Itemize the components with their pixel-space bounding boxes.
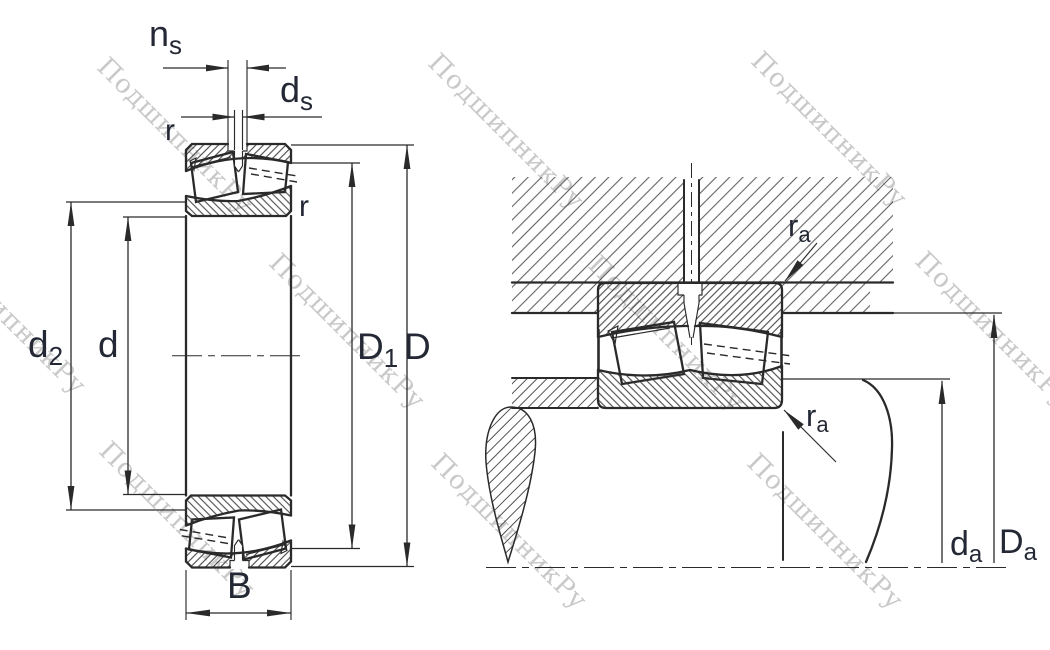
right-view-mounting-section [486,163,1008,568]
dimension-d2 [66,202,186,510]
left-view-bearing-section [66,60,414,620]
bearing-technical-drawing: ПодшипникРу ПодшипникРу ПодшипникРу Подш… [0,0,1050,650]
shaft-shoulder-profile [863,380,892,562]
dimension-D1 [291,163,360,549]
housing-hatch [512,177,893,283]
dimension-B [186,570,291,620]
leader-ra-bottom [784,410,836,462]
dimension-ns [163,60,286,147]
dimension-Da [991,314,998,563]
dimension-da [782,379,950,563]
bearing-drawing-svg [0,0,1050,650]
shaft-shoulder-hatch [512,378,598,408]
shaft-relief-groove [486,407,536,562]
